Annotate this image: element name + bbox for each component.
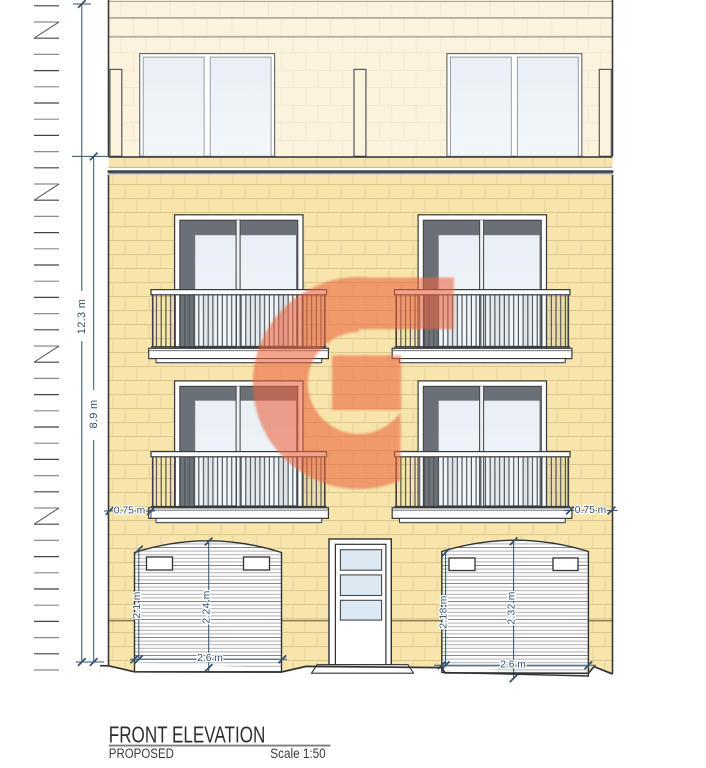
svg-text:0.75 m: 0.75 m: [575, 505, 606, 516]
svg-text:2.6 m: 2.6 m: [500, 659, 526, 670]
svg-text:Scale 1:50: Scale 1:50: [270, 746, 325, 762]
svg-text:PROPOSED: PROPOSED: [109, 746, 174, 762]
svg-text:2.6 m: 2.6 m: [197, 653, 223, 664]
svg-text:2.1 m: 2.1 m: [132, 591, 143, 618]
svg-text:FRONT ELEVATION: FRONT ELEVATION: [109, 722, 265, 748]
svg-text:12.3 m: 12.3 m: [76, 299, 88, 334]
svg-text:2.32 m: 2.32 m: [506, 591, 517, 624]
svg-text:8.9 m: 8.9 m: [88, 399, 100, 428]
svg-text:2.18 m: 2.18 m: [439, 595, 450, 628]
svg-text:0.75 m: 0.75 m: [114, 505, 145, 516]
svg-text:2.24 m: 2.24 m: [202, 590, 213, 623]
